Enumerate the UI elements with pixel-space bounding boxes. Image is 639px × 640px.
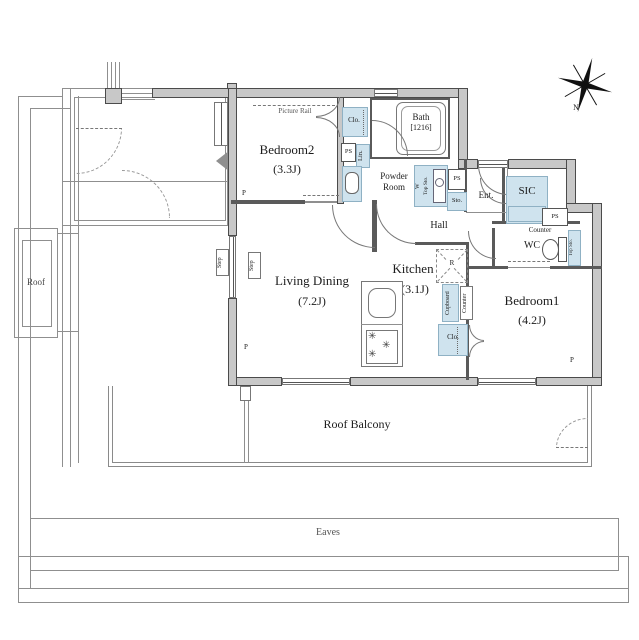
closet-label: Clo.: [341, 117, 367, 125]
step-label: Step: [249, 253, 260, 278]
ld-door-arc: [332, 205, 375, 248]
site-line: [18, 96, 19, 603]
eaves-line: [30, 570, 618, 571]
kitchen-sink: [368, 288, 396, 318]
bedroom1-label: Bedroom1: [484, 294, 580, 308]
washer-label: W: [415, 172, 423, 200]
window: [374, 89, 398, 97]
compass-rose-icon: [549, 49, 620, 120]
closet-label: Clo.: [438, 334, 468, 342]
eaves-line: [18, 588, 629, 589]
eaves-line: [30, 518, 618, 519]
cupboard-label: Cupboard: [445, 285, 456, 321]
sic-shelf: [508, 206, 546, 222]
powder-room-label: Powder: [370, 172, 418, 182]
washbasin-bowl: [345, 172, 359, 194]
railing-line: [111, 62, 112, 88]
closet-door-arc: [469, 325, 484, 341]
window: [214, 102, 228, 146]
sliding-door-track: [508, 267, 550, 268]
compass: [549, 49, 620, 120]
partition-wall: [231, 200, 305, 204]
bath-label: Bath: [398, 113, 444, 123]
wall-segment: [228, 88, 237, 236]
door-leaf-dashed: [76, 128, 122, 129]
pillar-label: P: [567, 357, 577, 365]
eaves-label: Eaves: [300, 528, 356, 539]
washer-drum-circle: [435, 178, 444, 187]
entrance-step-line: [466, 212, 506, 213]
wall-face-line: [122, 93, 155, 94]
pillar-label: P: [241, 344, 251, 352]
railing-line: [107, 62, 108, 88]
sliding-door-dashed: [508, 261, 550, 262]
pillar-block: [105, 88, 122, 104]
wc-counter-label: Counter: [516, 227, 564, 235]
door-swing-arc: [376, 204, 416, 244]
eaves-line: [18, 602, 629, 603]
pillar-label: P: [239, 190, 249, 198]
kitchen-label: Kitchen: [384, 262, 442, 276]
top-storage-label: Top Sto.: [423, 169, 432, 203]
site-line: [18, 96, 62, 97]
bath-size-label: [1216]: [398, 124, 444, 133]
wall-segment: [536, 377, 602, 386]
roof-line: [58, 331, 78, 332]
living-dining-label: Living Dining: [257, 274, 367, 288]
balcony-divider-handle: [240, 386, 251, 401]
roof-line: [58, 233, 78, 234]
balcony-divider: [248, 401, 249, 463]
pipe-space-label: PS: [448, 175, 466, 182]
closet-door-arc: [469, 341, 484, 357]
wall-segment: [458, 88, 468, 166]
powder-room-label2: Room: [370, 183, 418, 193]
counter-divider: [361, 324, 403, 325]
site-line: [30, 108, 31, 589]
window: [282, 378, 350, 385]
pipe-space-label: PS: [542, 213, 568, 220]
eaves-line: [628, 556, 629, 603]
bedroom2-size-label: (3.3J): [241, 163, 333, 176]
hatch-leaf-dashed: [556, 447, 588, 448]
compass-north-label: N: [570, 104, 582, 113]
linen-label: Lin.: [357, 145, 369, 167]
bedroom2-label: Bedroom2: [241, 143, 333, 157]
partition-wall: [415, 242, 468, 245]
roof-label: Roof: [16, 278, 56, 288]
wall-segment: [458, 159, 478, 169]
railing-line: [115, 62, 116, 88]
toilet-bowl: [542, 239, 559, 260]
wall-segment: [152, 88, 468, 98]
wall-segment: [350, 377, 478, 386]
wc-door-arc: [468, 231, 496, 259]
living-dining-size-label: (7.2J): [257, 295, 367, 308]
stove-burner: ✳: [368, 349, 376, 360]
stove-burner: ✳: [368, 331, 376, 342]
wc-top-storage-label: Top Sto.: [569, 232, 580, 264]
balcony-divider: [244, 401, 245, 463]
bedroom1-size-label: (4.2J): [484, 314, 580, 327]
eaves-line: [18, 556, 629, 557]
wall-segment: [228, 298, 237, 386]
window-line: [283, 382, 349, 383]
window: [229, 236, 236, 298]
toilet-tank: [558, 237, 567, 262]
railing-line: [119, 62, 120, 88]
refrigerator-label: R: [446, 260, 458, 268]
sic-label: SIC: [510, 186, 544, 198]
wall-segment: [592, 203, 602, 386]
wall-face-line: [122, 99, 155, 100]
sliding-door-track: [305, 201, 337, 203]
kitchen-counter-label: Counter: [462, 287, 471, 319]
eaves-line: [618, 518, 619, 571]
window-line: [375, 93, 397, 94]
window-line: [233, 237, 234, 297]
step-label: Step: [217, 250, 228, 275]
stove-burner: ✳: [382, 340, 390, 351]
floor-plan: Eaves Roof Roof Balcony: [0, 0, 639, 640]
hall-label: Hall: [424, 221, 454, 232]
window: [478, 378, 536, 385]
window-line: [221, 103, 222, 145]
pipe-space-label: PS: [341, 148, 356, 155]
window-line: [479, 382, 535, 383]
sliding-door-dashed: [303, 195, 339, 196]
roof-balcony-label: Roof Balcony: [312, 418, 402, 431]
storage-label: Sto.: [447, 197, 467, 204]
